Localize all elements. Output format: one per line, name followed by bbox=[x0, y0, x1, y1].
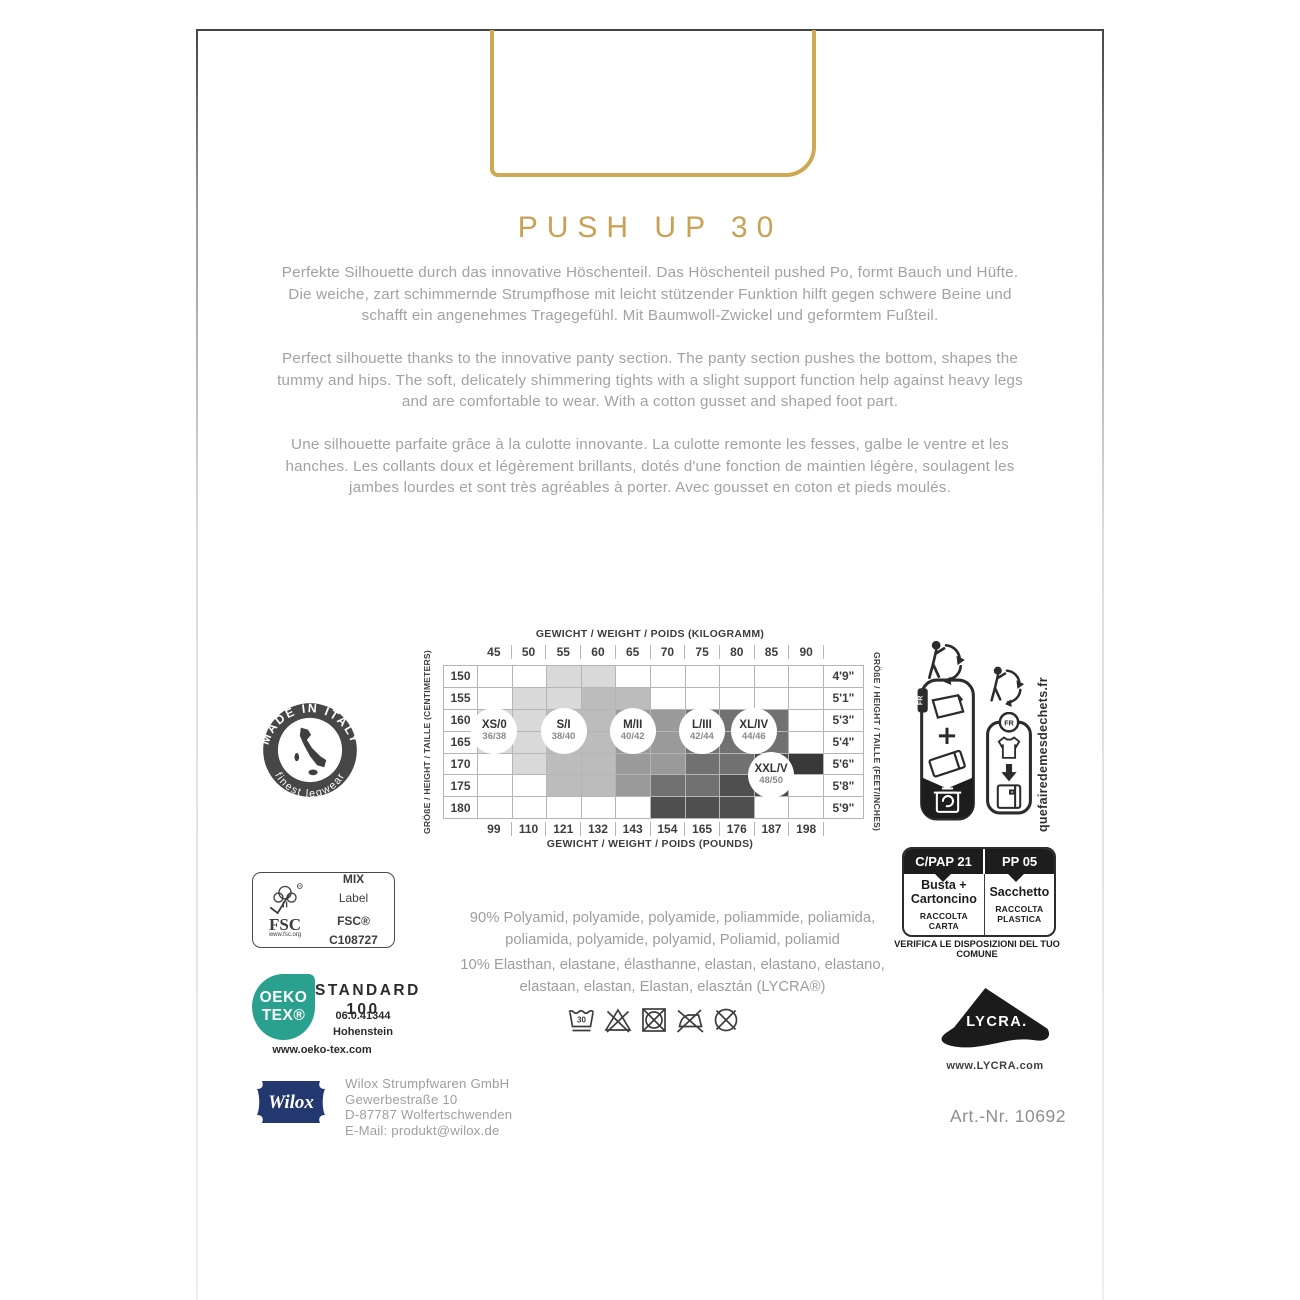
description-french: Une silhouette parfaite grâce à la culot… bbox=[260, 434, 1040, 499]
made-in-italy-stamp: MADE IN ITALY finest legwear bbox=[254, 694, 366, 806]
height-cm-label: 175 bbox=[443, 774, 477, 796]
chevron-down-icon bbox=[935, 874, 951, 890]
height-cm-label: 155 bbox=[443, 687, 477, 709]
waste-sorting-url: quefairedemesdechets.fr bbox=[1036, 652, 1050, 832]
size-chart-cell bbox=[719, 665, 754, 687]
size-code: L/III bbox=[692, 719, 712, 731]
gold-window-outline bbox=[490, 30, 816, 177]
size-chart-cell bbox=[788, 709, 823, 731]
size-chart-cell bbox=[788, 687, 823, 709]
size-chart-cell bbox=[615, 753, 650, 775]
composition-line: 90% Polyamid, polyamide, polyamide, poli… bbox=[450, 908, 895, 930]
svg-text:R: R bbox=[298, 885, 301, 889]
size-chart-cell bbox=[615, 687, 650, 709]
size-bubble: XS/036/38 bbox=[471, 708, 517, 754]
sorting-item: Cartoncino bbox=[911, 892, 977, 906]
size-chart-cell bbox=[788, 731, 823, 753]
material-code-paper: C/PAP 21 bbox=[904, 849, 985, 874]
size-chart-cell bbox=[581, 753, 616, 775]
sorting-body: Busta + Cartoncino RACCOLTA CARTA Sacche… bbox=[904, 874, 1054, 935]
fsc-url: www.fsc.org bbox=[269, 932, 301, 938]
size-chart-cell bbox=[477, 665, 512, 687]
text-line: E-Mail: produkt@wilox.de bbox=[345, 1123, 512, 1139]
size-chart-ft-axis-title: GRÖßE / HEIGHT / TAILLE (FEET/INCHES) bbox=[872, 642, 882, 842]
sorting-stream: CARTA bbox=[929, 921, 959, 931]
size-chart-cell bbox=[650, 753, 685, 775]
text-line: tummy and hips. The soft, delicately shi… bbox=[260, 370, 1040, 392]
height-cm-label: 150 bbox=[443, 665, 477, 687]
size-chart-cell bbox=[546, 665, 581, 687]
size-numbers: 36/38 bbox=[482, 731, 506, 743]
text-line: hanches. Les collants doux et légèrement… bbox=[260, 456, 1040, 478]
wilox-wordmark: Wilox bbox=[268, 1092, 314, 1113]
italian-sorting-label: C/PAP 21 PP 05 Busta + Cartoncino RACCOL… bbox=[902, 847, 1056, 937]
height-ft-label: 4'9" bbox=[823, 665, 863, 687]
article-number: Art.-Nr. 10692 bbox=[950, 1106, 1066, 1127]
weight-label: 143 bbox=[615, 822, 650, 836]
size-bubble: L/III42/44 bbox=[679, 708, 725, 754]
size-chart-cell bbox=[512, 753, 547, 775]
fr-circle-label: FR bbox=[1004, 719, 1014, 727]
no-dry-clean-icon bbox=[711, 1005, 741, 1035]
carton-icon bbox=[933, 695, 963, 717]
package-right-edge bbox=[1102, 29, 1104, 1300]
size-chart-kg-labels: 45505560657075808590 bbox=[477, 645, 824, 659]
product-title: PUSH UP 30 bbox=[270, 211, 1030, 245]
paper-packaging-sorting-icon: FR bbox=[916, 674, 978, 822]
weight-label: 55 bbox=[545, 645, 580, 659]
text-line: jambes lourdes et sont très agréables à … bbox=[260, 477, 1040, 499]
fsc-wordmark: FSC bbox=[269, 918, 301, 932]
size-chart-cell bbox=[650, 796, 685, 818]
description-german: Perfekte Silhouette durch das innovative… bbox=[260, 262, 1040, 327]
text-line: and are comfortable to wear. With a cott… bbox=[260, 391, 1040, 413]
size-chart-cm-axis-title: GRÖßE / HEIGHT / TAILLE (CENTIMETERS) bbox=[422, 642, 432, 842]
fsc-mix: MIX bbox=[313, 870, 394, 889]
height-ft-label: 5'6" bbox=[823, 753, 863, 775]
plus-icon bbox=[939, 728, 955, 744]
size-chart-cell bbox=[581, 665, 616, 687]
size-chart-cell bbox=[615, 774, 650, 796]
weight-label: 132 bbox=[580, 822, 615, 836]
size-code: XL/IV bbox=[739, 719, 768, 731]
package-left-edge bbox=[196, 29, 198, 1300]
weight-label: 187 bbox=[754, 822, 789, 836]
weight-label: 110 bbox=[511, 822, 546, 836]
height-ft-label: 5'4" bbox=[823, 731, 863, 753]
size-chart-cell bbox=[685, 665, 720, 687]
size-bubble: M/II40/42 bbox=[610, 708, 656, 754]
polyamide-lines: 90% Polyamid, polyamide, polyamide, poli… bbox=[450, 908, 895, 951]
text-line: Une silhouette parfaite grâce à la culot… bbox=[260, 434, 1040, 456]
size-chart-cell bbox=[546, 774, 581, 796]
no-tumble-dry-icon bbox=[639, 1005, 669, 1035]
elastane-lines: 10% Elasthan, elastane, élasthanne, elas… bbox=[450, 955, 895, 998]
size-numbers: 40/42 bbox=[621, 731, 645, 743]
oeko-cert-number: 06.0.41344 Hohenstein bbox=[315, 1008, 411, 1040]
tex-text: TEX® bbox=[262, 1007, 306, 1025]
size-chart-cell bbox=[546, 687, 581, 709]
weight-label: 99 bbox=[477, 822, 511, 836]
size-chart-cell bbox=[754, 796, 789, 818]
size-chart-cell bbox=[615, 665, 650, 687]
size-chart-lbs-labels: 99110121132143154165176187198 bbox=[477, 822, 824, 836]
weight-label: 75 bbox=[684, 645, 719, 659]
fsc-label: R FSC www.fsc.org MIX Label FSC® C108727 bbox=[252, 872, 395, 948]
size-numbers: 48/50 bbox=[759, 775, 783, 787]
weight-label: 60 bbox=[580, 645, 615, 659]
fsc-certificate: MIX Label FSC® C108727 bbox=[313, 870, 394, 950]
size-chart-cell bbox=[477, 796, 512, 818]
size-chart-cell bbox=[685, 687, 720, 709]
material-code-plastic: PP 05 bbox=[985, 849, 1054, 874]
size-numbers: 42/44 bbox=[690, 731, 714, 743]
text-line: Die weiche, zart schimmernde Strumpfhose… bbox=[260, 284, 1040, 306]
size-bubble: S/I38/40 bbox=[541, 708, 587, 754]
packaging-back-panel: PUSH UP 30 Perfekte Silhouette durch das… bbox=[0, 0, 1300, 1300]
fsc-code: FSC® C108727 bbox=[313, 912, 394, 950]
sorting-caption: VERIFICA LE DISPOSIZIONI DEL TUO COMUNE bbox=[894, 939, 1060, 959]
wilox-logo: Wilox bbox=[251, 1079, 331, 1125]
height-ft-label: 5'8" bbox=[823, 774, 863, 796]
size-chart-cell bbox=[477, 753, 512, 775]
size-chart-cell bbox=[581, 774, 616, 796]
size-code: XXL/V bbox=[754, 763, 787, 775]
height-cm-label: 170 bbox=[443, 753, 477, 775]
size-chart-cell bbox=[546, 796, 581, 818]
size-chart-cell bbox=[788, 796, 823, 818]
material-composition: 90% Polyamid, polyamide, polyamide, poli… bbox=[450, 908, 895, 1002]
height-ft-label: 5'3" bbox=[823, 709, 863, 731]
description-english: Perfect silhouette thanks to the innovat… bbox=[260, 348, 1040, 413]
weight-label: 90 bbox=[788, 645, 823, 659]
no-bleach-icon bbox=[603, 1005, 633, 1035]
oeko-text: OEKO bbox=[260, 989, 308, 1007]
size-chart-cell bbox=[477, 687, 512, 709]
text-line: Perfekte Silhouette durch das innovative… bbox=[260, 262, 1040, 284]
oeko-tex-url: www.oeko-tex.com bbox=[252, 1044, 392, 1056]
weight-label: 85 bbox=[754, 645, 789, 659]
size-numbers: 44/46 bbox=[742, 731, 766, 743]
fsc-label-type: Label bbox=[313, 889, 394, 908]
lycra-logo: LYCRA. bbox=[933, 986, 1057, 1050]
fsc-logo: R FSC www.fsc.org bbox=[253, 882, 313, 938]
oeko-tex-logo: OEKO TEX® bbox=[252, 974, 315, 1040]
sachet-icon bbox=[929, 750, 965, 776]
sicily-icon bbox=[308, 770, 317, 776]
size-chart-cell bbox=[685, 774, 720, 796]
size-chart-kg-axis-title: GEWICHT / WEIGHT / POIDS (KILOGRAMM) bbox=[477, 628, 823, 640]
size-chart-cell bbox=[788, 665, 823, 687]
size-chart-cell bbox=[754, 665, 789, 687]
weight-label: 165 bbox=[684, 822, 719, 836]
weight-label: 198 bbox=[788, 822, 823, 836]
size-chart-cell bbox=[754, 687, 789, 709]
text-line: D-87787 Wolfertschwenden bbox=[345, 1107, 512, 1123]
lycra-wordmark: LYCRA. bbox=[966, 1014, 1027, 1030]
size-bubble: XXL/V48/50 bbox=[748, 752, 794, 798]
manufacturer-address: Wilox Strumpfwaren GmbHGewerbestraße 10D… bbox=[345, 1076, 512, 1138]
size-chart-cell bbox=[650, 665, 685, 687]
size-chart-cell bbox=[512, 687, 547, 709]
weight-label: 65 bbox=[615, 645, 650, 659]
weight-label: 80 bbox=[719, 645, 754, 659]
sardinia-icon bbox=[294, 753, 299, 761]
cert-number: 06.0.41344 bbox=[315, 1008, 411, 1024]
size-chart-cell bbox=[581, 796, 616, 818]
wash-30-gentle-icon: 30 bbox=[567, 1005, 597, 1035]
size-chart-cell bbox=[719, 687, 754, 709]
size-chart-cell bbox=[512, 665, 547, 687]
size-chart-cell bbox=[650, 687, 685, 709]
text-line: schafft ein angenehmes Tragegefühl. Mit … bbox=[260, 305, 1040, 327]
size-chart-cell bbox=[685, 753, 720, 775]
height-cm-label: 180 bbox=[443, 796, 477, 818]
weight-label: 50 bbox=[511, 645, 546, 659]
sorting-stream: PLASTICA bbox=[997, 914, 1041, 924]
size-chart-cell bbox=[581, 687, 616, 709]
sorting-stream: RACCOLTA bbox=[995, 904, 1043, 914]
size-code: M/II bbox=[623, 719, 642, 731]
triman-icon bbox=[982, 664, 1028, 708]
textile-container-icon bbox=[998, 785, 1020, 807]
composition-line: 10% Elasthan, elastane, élasthanne, elas… bbox=[450, 955, 895, 977]
size-chart-cell bbox=[546, 753, 581, 775]
size-code: S/I bbox=[556, 719, 570, 731]
text-line: Perfect silhouette thanks to the innovat… bbox=[260, 348, 1040, 370]
size-chart-cell bbox=[512, 774, 547, 796]
fr-tab-label: FR bbox=[917, 696, 925, 705]
size-bubble: XL/IV44/46 bbox=[731, 708, 777, 754]
size-code: XS/0 bbox=[482, 719, 507, 731]
no-iron-icon bbox=[675, 1005, 705, 1035]
weight-label: 70 bbox=[650, 645, 685, 659]
weight-label: 45 bbox=[477, 645, 511, 659]
size-chart-cell bbox=[650, 774, 685, 796]
care-instructions: 30 bbox=[567, 1005, 741, 1035]
standard-text: STANDARD bbox=[315, 981, 411, 1000]
size-chart-cell bbox=[719, 796, 754, 818]
lycra-url: www.LYCRA.com bbox=[933, 1060, 1057, 1072]
arrow-down-icon bbox=[1001, 764, 1016, 781]
fsc-tree-icon: R bbox=[265, 882, 305, 918]
textile-sorting-icon: FR bbox=[984, 712, 1034, 816]
cert-institute: Hohenstein bbox=[315, 1024, 411, 1040]
height-ft-label: 5'9" bbox=[823, 796, 863, 818]
tshirt-icon bbox=[999, 737, 1019, 757]
chevron-down-icon bbox=[1008, 874, 1024, 890]
composition-line: poliamida, polyamide, polyamid, Poliamid… bbox=[450, 930, 895, 952]
size-chart-cell bbox=[685, 796, 720, 818]
weight-label: 176 bbox=[719, 822, 754, 836]
weight-label: 154 bbox=[650, 822, 685, 836]
height-ft-label: 5'1" bbox=[823, 687, 863, 709]
composition-line: elastaan, elastan, Elastan, elasztán (LY… bbox=[450, 977, 895, 999]
sorting-stream: RACCOLTA bbox=[920, 911, 968, 921]
size-numbers: 38/40 bbox=[552, 731, 576, 743]
text-line: Gewerbestraße 10 bbox=[345, 1092, 512, 1108]
size-chart-cell bbox=[512, 796, 547, 818]
size-chart-cell bbox=[615, 796, 650, 818]
size-chart-cell bbox=[477, 774, 512, 796]
text-line: Wilox Strumpfwaren GmbH bbox=[345, 1076, 512, 1092]
size-chart: GEWICHT / WEIGHT / POIDS (KILOGRAMM) 455… bbox=[420, 628, 890, 852]
weight-label: 121 bbox=[545, 822, 580, 836]
size-chart-lbs-axis-title: GEWICHT / WEIGHT / POIDS (POUNDS) bbox=[477, 838, 823, 850]
wash-temp: 30 bbox=[577, 1016, 586, 1025]
sorting-header: C/PAP 21 PP 05 bbox=[904, 849, 1054, 874]
